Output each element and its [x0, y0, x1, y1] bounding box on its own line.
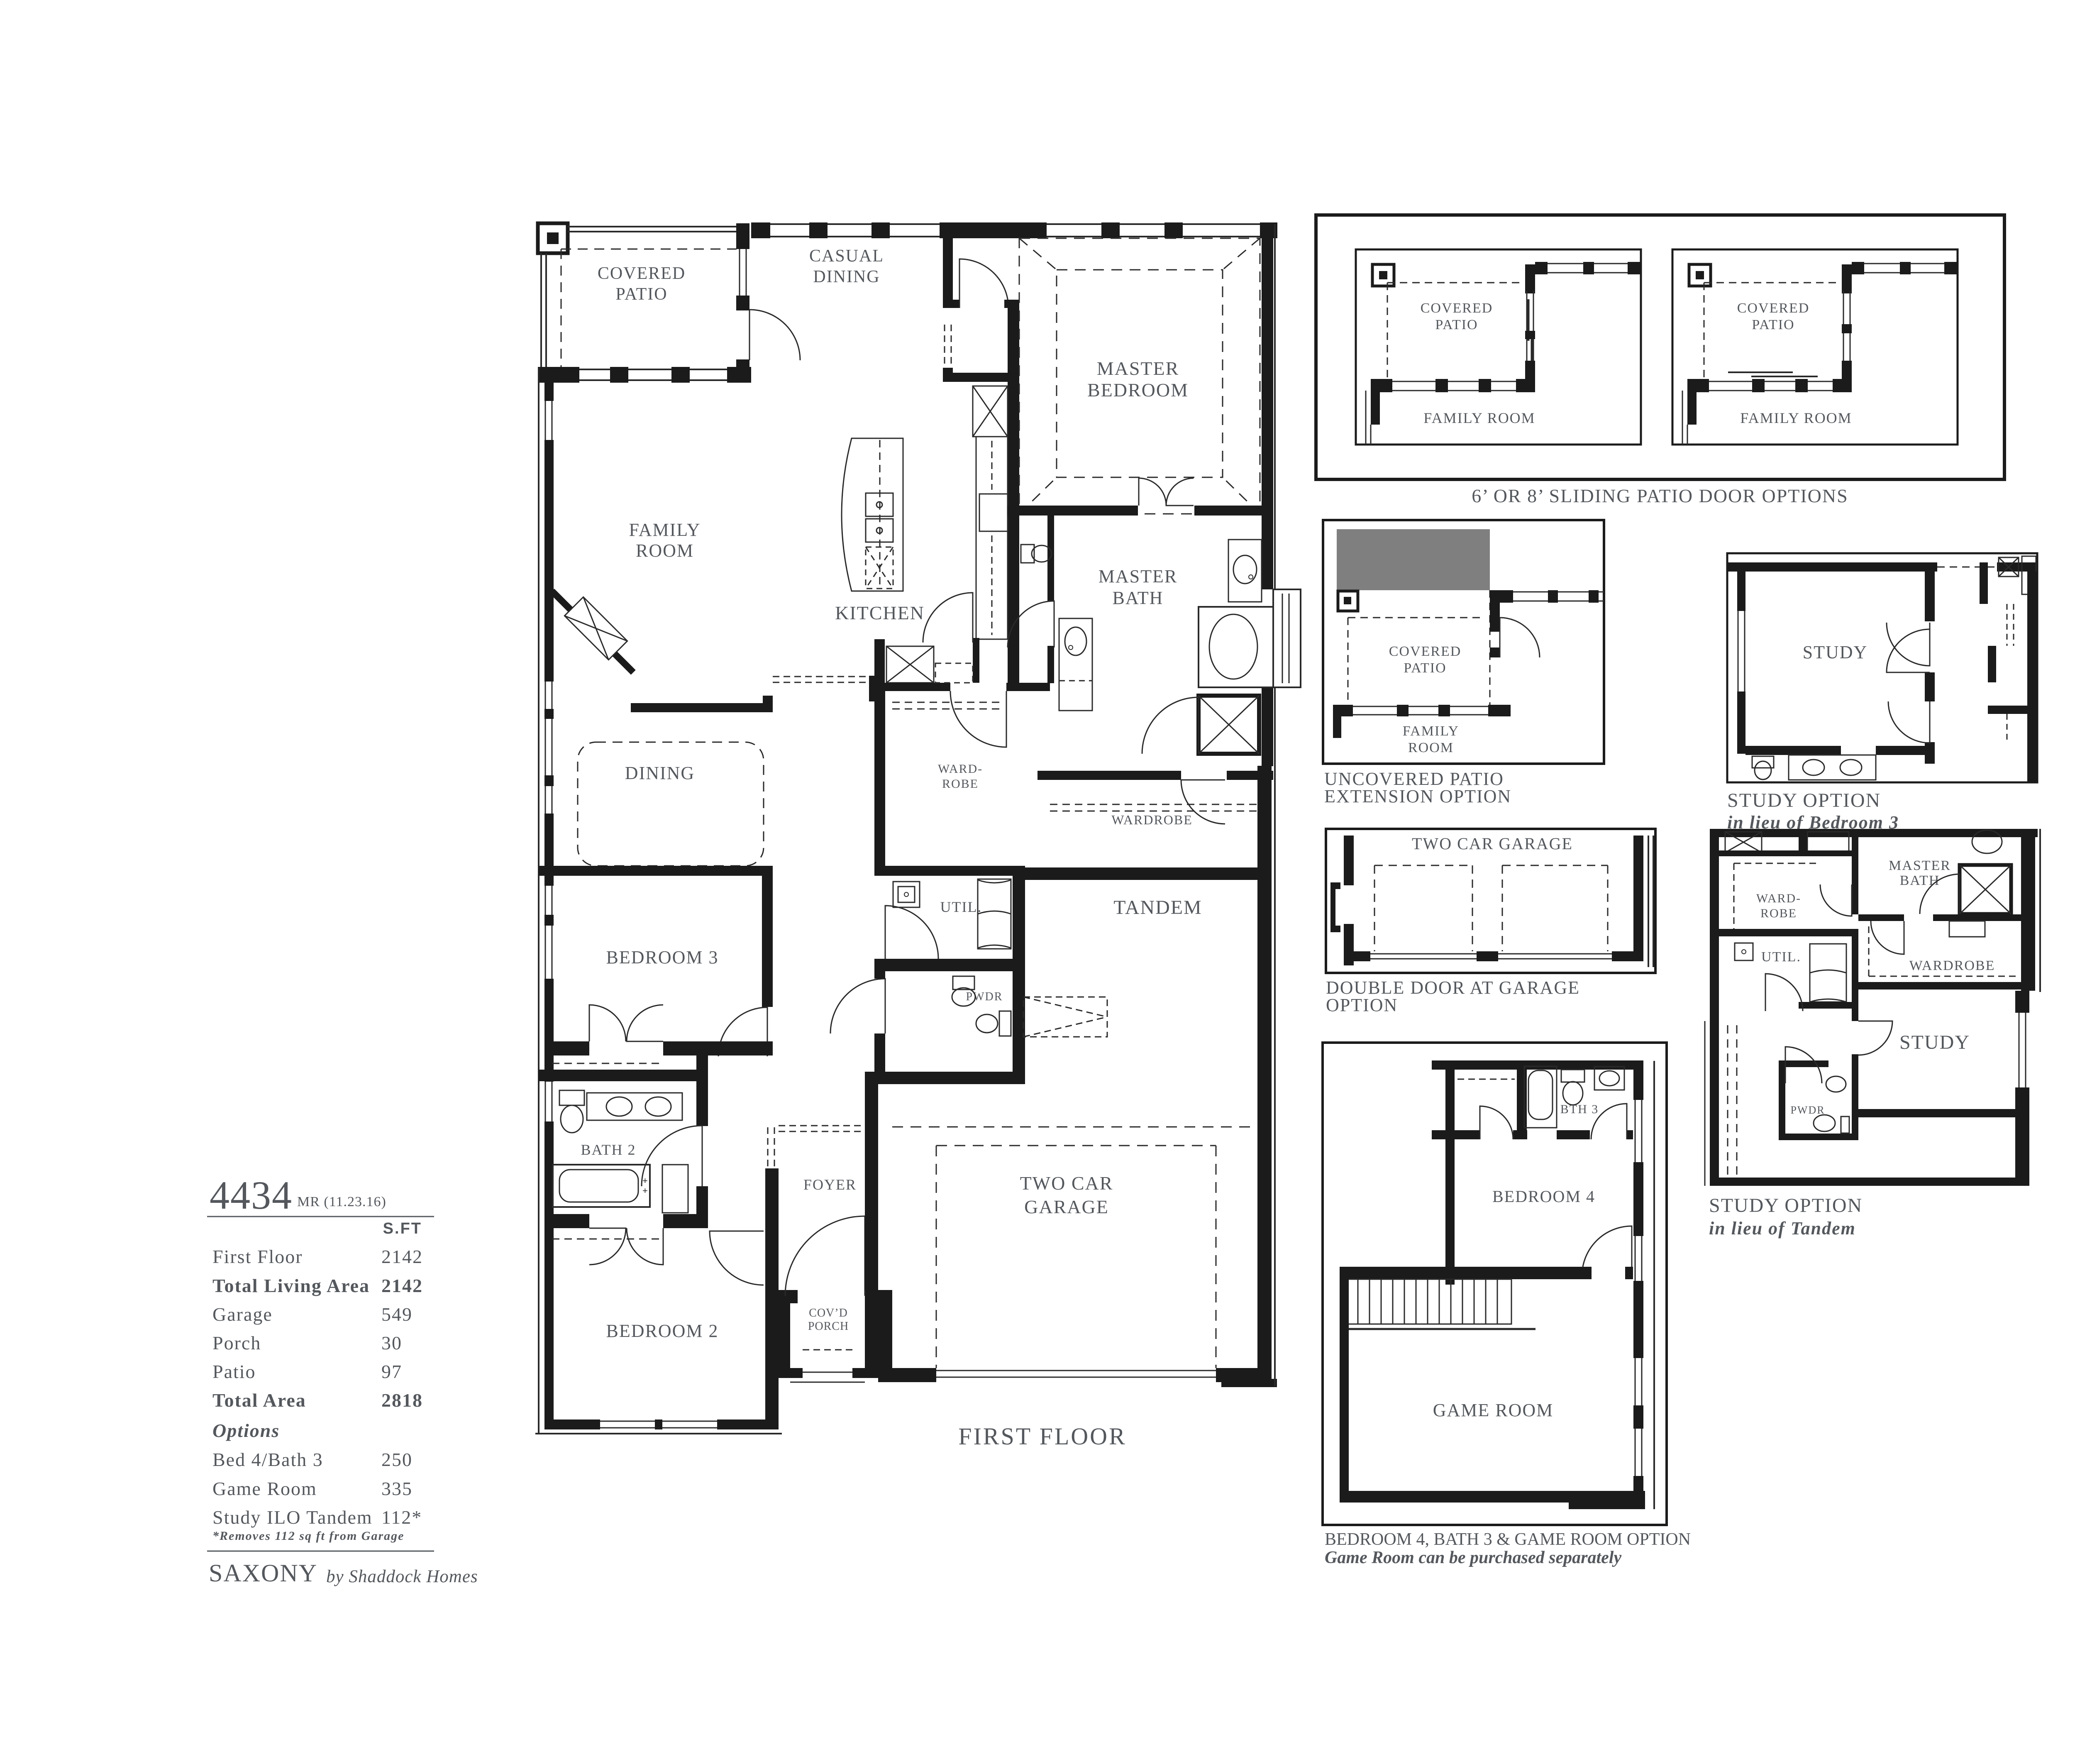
- svg-text:First Floor: First Floor: [212, 1246, 303, 1267]
- svg-text:COVERED: COVERED: [598, 264, 686, 283]
- svg-text:PATIO: PATIO: [1404, 660, 1446, 676]
- svg-text:PATIO: PATIO: [1435, 317, 1478, 332]
- svg-text:SAXONY: SAXONY: [209, 1559, 317, 1587]
- svg-text:549: 549: [381, 1304, 413, 1325]
- svg-text:BEDROOM 2: BEDROOM 2: [606, 1321, 718, 1341]
- svg-text:by Shaddock Homes: by Shaddock Homes: [326, 1567, 478, 1586]
- svg-text:COVERED: COVERED: [1389, 644, 1462, 659]
- svg-text:PATIO: PATIO: [1752, 317, 1794, 332]
- svg-text:Porch: Porch: [212, 1332, 261, 1354]
- svg-text:TWO CAR: TWO CAR: [1020, 1173, 1113, 1194]
- svg-text:FOYER: FOYER: [803, 1176, 857, 1193]
- svg-text:BEDROOM 4, BATH 3 & GAME ROOM: BEDROOM 4, BATH 3 & GAME ROOM OPTION: [1325, 1530, 1691, 1549]
- svg-text:PWDR: PWDR: [966, 990, 1003, 1003]
- svg-text:OPTION: OPTION: [1326, 995, 1398, 1015]
- svg-text:MR (11.23.16): MR (11.23.16): [297, 1194, 386, 1209]
- svg-text:BEDROOM: BEDROOM: [1087, 379, 1189, 401]
- svg-text:2142: 2142: [381, 1246, 423, 1267]
- svg-text:MASTER: MASTER: [1099, 566, 1177, 586]
- svg-text:+: +: [642, 1175, 648, 1186]
- svg-text:S.FT: S.FT: [383, 1220, 422, 1237]
- svg-text:GAME ROOM: GAME ROOM: [1433, 1400, 1554, 1420]
- svg-text:Bed 4/Bath 3: Bed 4/Bath 3: [212, 1449, 323, 1470]
- svg-text:BTH 3: BTH 3: [1560, 1102, 1599, 1116]
- svg-text:PATIO: PATIO: [615, 285, 667, 304]
- svg-text:Study ILO Tandem: Study ILO Tandem: [212, 1507, 373, 1528]
- svg-text:30: 30: [381, 1332, 402, 1354]
- svg-text:112*: 112*: [381, 1507, 422, 1528]
- svg-text:WARD-: WARD-: [1756, 892, 1801, 905]
- svg-text:PORCH: PORCH: [808, 1320, 849, 1333]
- svg-text:2142: 2142: [381, 1275, 423, 1296]
- svg-text:BEDROOM 4: BEDROOM 4: [1492, 1187, 1595, 1206]
- svg-text:Options: Options: [212, 1420, 280, 1441]
- svg-text:COVERED: COVERED: [1737, 301, 1810, 316]
- svg-text:BATH 2: BATH 2: [581, 1141, 636, 1158]
- svg-text:+: +: [642, 1185, 648, 1196]
- svg-text:KITCHEN: KITCHEN: [835, 602, 925, 623]
- svg-text:6’ OR 8’ SLIDING PATIO DOOR OP: 6’ OR 8’ SLIDING PATIO DOOR OPTIONS: [1472, 485, 1848, 506]
- svg-text:335: 335: [381, 1478, 413, 1499]
- svg-text:TWO CAR GARAGE: TWO CAR GARAGE: [1412, 834, 1573, 853]
- svg-text:MASTER: MASTER: [1889, 858, 1951, 873]
- svg-text:UTIL.: UTIL.: [940, 899, 982, 915]
- svg-text:ROBE: ROBE: [1760, 906, 1797, 920]
- svg-text:FAMILY: FAMILY: [1403, 723, 1459, 739]
- svg-text:GARAGE: GARAGE: [1024, 1196, 1109, 1217]
- svg-text:PWDR: PWDR: [1790, 1104, 1825, 1116]
- svg-text:FAMILY: FAMILY: [629, 520, 701, 540]
- svg-text:TANDEM: TANDEM: [1113, 897, 1202, 919]
- svg-text:CASUAL: CASUAL: [809, 247, 884, 266]
- svg-text:BATH: BATH: [1900, 873, 1940, 888]
- svg-text:BATH: BATH: [1113, 588, 1164, 608]
- svg-text:*Removes 112 sq ft from Garage: *Removes 112 sq ft from Garage: [212, 1529, 404, 1543]
- svg-text:ROBE: ROBE: [942, 777, 979, 791]
- svg-text:97: 97: [381, 1361, 402, 1382]
- svg-text:STUDY OPTION: STUDY OPTION: [1727, 789, 1881, 811]
- svg-text:WARD-: WARD-: [938, 762, 983, 776]
- svg-text:ROOM: ROOM: [636, 540, 694, 561]
- svg-text:MASTER: MASTER: [1097, 358, 1179, 379]
- svg-text:COV’D: COV’D: [809, 1307, 848, 1319]
- svg-text:DINING: DINING: [813, 267, 880, 286]
- svg-text:STUDY OPTION: STUDY OPTION: [1709, 1195, 1863, 1217]
- svg-text:COVERED: COVERED: [1421, 301, 1493, 316]
- svg-text:DINING: DINING: [625, 763, 695, 783]
- svg-text:BEDROOM 3: BEDROOM 3: [606, 947, 718, 968]
- svg-text:UTIL.: UTIL.: [1761, 949, 1801, 965]
- svg-text:Total Area: Total Area: [212, 1390, 306, 1411]
- svg-text:WARDROBE: WARDROBE: [1909, 958, 1995, 973]
- svg-text:FAMILY ROOM: FAMILY ROOM: [1423, 410, 1535, 426]
- svg-text:2818: 2818: [381, 1390, 423, 1411]
- svg-text:FAMILY ROOM: FAMILY ROOM: [1740, 410, 1852, 426]
- svg-text:STUDY: STUDY: [1899, 1031, 1970, 1053]
- svg-text:WARDROBE: WARDROBE: [1111, 812, 1193, 827]
- svg-text:Game Room can be purchased sep: Game Room can be purchased separately: [1325, 1548, 1621, 1567]
- svg-text:ROOM: ROOM: [1408, 740, 1454, 755]
- svg-text:Patio: Patio: [212, 1361, 256, 1382]
- svg-text:EXTENSION OPTION: EXTENSION OPTION: [1324, 786, 1511, 806]
- svg-text:in lieu of Tandem: in lieu of Tandem: [1709, 1218, 1856, 1239]
- svg-text:4434: 4434: [210, 1173, 293, 1217]
- svg-text:STUDY: STUDY: [1803, 642, 1868, 662]
- svg-text:Total Living Area: Total Living Area: [212, 1275, 370, 1296]
- svg-text:Garage: Garage: [212, 1304, 273, 1325]
- svg-text:FIRST FLOOR: FIRST FLOOR: [958, 1423, 1127, 1450]
- svg-text:Game Room: Game Room: [212, 1478, 317, 1499]
- svg-text:250: 250: [381, 1449, 413, 1470]
